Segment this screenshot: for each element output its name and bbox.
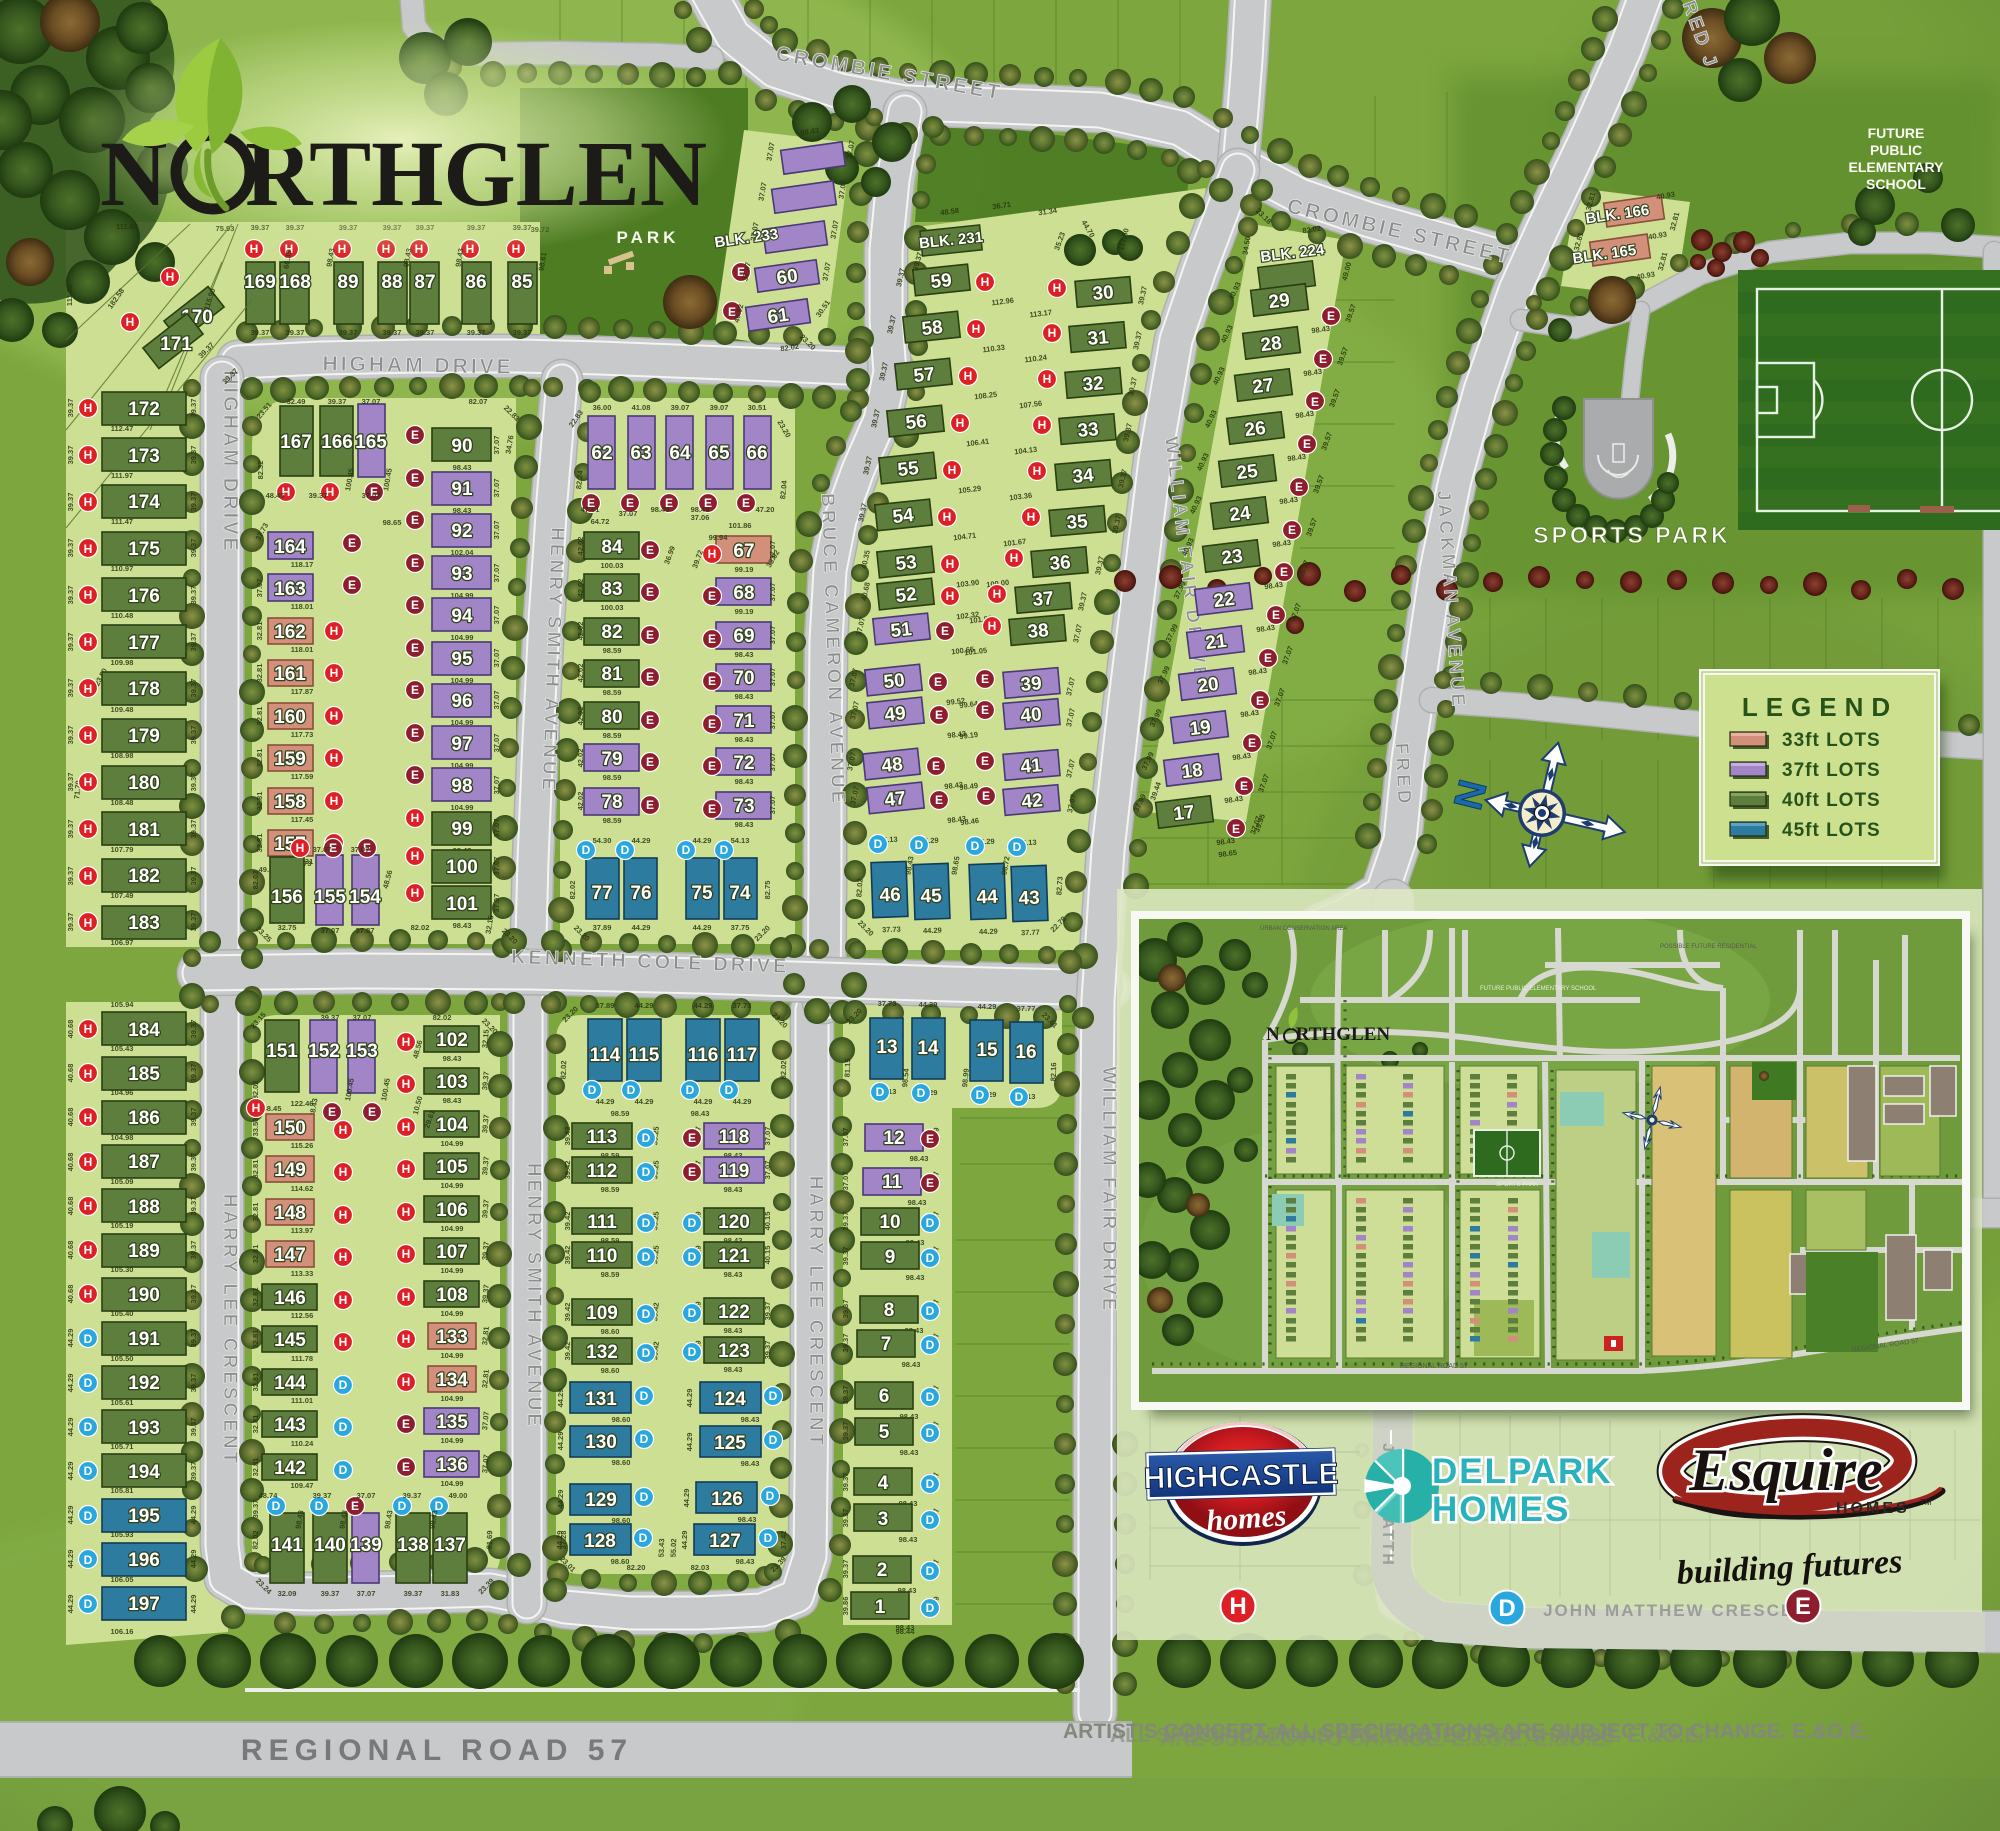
svg-text:SCHOOL: SCHOOL xyxy=(1866,176,1926,192)
svg-text:48.45: 48.45 xyxy=(266,491,285,500)
svg-text:98.43: 98.43 xyxy=(691,1109,710,1118)
svg-text:37.07: 37.07 xyxy=(768,796,777,815)
svg-text:82.02: 82.02 xyxy=(568,881,577,900)
svg-text:98.59: 98.59 xyxy=(601,1185,620,1194)
svg-text:65: 65 xyxy=(708,443,730,464)
svg-text:171: 171 xyxy=(160,334,192,355)
svg-text:H: H xyxy=(330,624,339,638)
svg-text:129: 129 xyxy=(585,1490,617,1511)
svg-text:42.02: 42.02 xyxy=(576,749,585,768)
svg-text:103: 103 xyxy=(436,1072,468,1093)
svg-text:39.37: 39.37 xyxy=(66,539,75,558)
svg-text:H: H xyxy=(993,587,1002,601)
svg-text:32.81: 32.81 xyxy=(255,664,264,683)
svg-text:44.29: 44.29 xyxy=(66,1462,75,1481)
svg-text:83: 83 xyxy=(601,579,622,600)
svg-text:39.37: 39.37 xyxy=(189,1285,198,1304)
svg-text:52: 52 xyxy=(895,584,918,607)
svg-text:H: H xyxy=(84,1022,93,1036)
svg-text:31: 31 xyxy=(1087,327,1110,350)
svg-text:REGIONAL ROAD 57: REGIONAL ROAD 57 xyxy=(1400,1363,1468,1370)
svg-text:H: H xyxy=(402,1035,411,1049)
svg-text:42.02: 42.02 xyxy=(576,664,585,683)
svg-text:37.07: 37.07 xyxy=(492,894,501,913)
svg-text:39.37: 39.37 xyxy=(189,1329,198,1348)
svg-text:E: E xyxy=(708,589,716,603)
svg-text:167: 167 xyxy=(280,432,312,453)
svg-text:110.48: 110.48 xyxy=(111,611,134,620)
svg-text:E: E xyxy=(1280,565,1288,579)
svg-text:37.07: 37.07 xyxy=(492,479,501,498)
svg-text:63: 63 xyxy=(630,443,651,464)
svg-text:104.99: 104.99 xyxy=(441,1139,464,1148)
svg-text:E: E xyxy=(1795,1593,1811,1620)
svg-text:87: 87 xyxy=(414,272,435,293)
svg-text:82.02: 82.02 xyxy=(251,871,260,890)
svg-text:D: D xyxy=(926,1601,935,1615)
svg-text:5: 5 xyxy=(879,1422,890,1443)
svg-text:28: 28 xyxy=(1259,333,1283,356)
svg-text:96: 96 xyxy=(451,691,472,712)
svg-text:139: 139 xyxy=(350,1535,382,1556)
svg-text:53: 53 xyxy=(895,552,918,575)
svg-text:118.01: 118.01 xyxy=(291,645,314,654)
svg-text:100.03: 100.03 xyxy=(601,561,624,570)
svg-text:E: E xyxy=(1288,523,1296,537)
svg-text:D: D xyxy=(84,1420,93,1434)
svg-text:100: 100 xyxy=(446,857,478,878)
svg-text:44.29: 44.29 xyxy=(694,1001,713,1010)
svg-text:H: H xyxy=(1229,1593,1246,1620)
svg-text:196: 196 xyxy=(128,1550,160,1571)
svg-text:36: 36 xyxy=(1049,552,1072,575)
svg-text:E: E xyxy=(646,543,654,557)
svg-text:39.37: 39.37 xyxy=(383,328,402,337)
svg-text:D: D xyxy=(84,1464,93,1478)
svg-text:111.47: 111.47 xyxy=(111,517,133,526)
svg-text:H: H xyxy=(84,1111,93,1125)
svg-text:37.07: 37.07 xyxy=(768,668,777,687)
svg-text:32.81: 32.81 xyxy=(255,622,264,641)
svg-text:89: 89 xyxy=(337,272,358,293)
svg-text:H: H xyxy=(84,1243,93,1257)
svg-text:109.48: 109.48 xyxy=(111,705,134,714)
svg-text:H: H xyxy=(1033,464,1042,478)
svg-text:105.43: 105.43 xyxy=(111,1044,134,1053)
svg-text:105.61: 105.61 xyxy=(111,1398,134,1407)
svg-text:98.43: 98.43 xyxy=(735,777,754,786)
svg-text:117.87: 117.87 xyxy=(291,687,314,696)
svg-text:78: 78 xyxy=(601,792,622,813)
svg-text:72: 72 xyxy=(733,753,754,774)
svg-text:D: D xyxy=(926,1426,935,1440)
svg-text:107: 107 xyxy=(436,1242,468,1263)
svg-text:39.42: 39.42 xyxy=(563,1212,572,1231)
svg-text:39.37: 39.37 xyxy=(189,399,198,418)
svg-text:39.42: 39.42 xyxy=(563,1161,572,1180)
svg-text:39.37: 39.37 xyxy=(513,328,532,337)
svg-text:118.17: 118.17 xyxy=(291,560,314,569)
svg-text:141: 141 xyxy=(271,1535,303,1556)
svg-text:20: 20 xyxy=(1196,674,1220,697)
svg-text:39.37: 39.37 xyxy=(189,1374,198,1393)
svg-text:E: E xyxy=(934,675,942,689)
svg-text:120: 120 xyxy=(718,1212,750,1233)
svg-text:FRED: FRED xyxy=(1390,742,1414,807)
svg-text:42.02: 42.02 xyxy=(576,537,585,556)
svg-text:E: E xyxy=(328,1105,336,1119)
svg-text:67: 67 xyxy=(733,541,754,562)
svg-text:15: 15 xyxy=(976,1040,998,1061)
svg-text:41.08: 41.08 xyxy=(632,403,651,412)
svg-text:42.02: 42.02 xyxy=(576,792,585,811)
svg-text:H: H xyxy=(411,886,420,900)
svg-text:E: E xyxy=(982,789,990,803)
svg-text:39.37: 39.37 xyxy=(66,399,75,418)
svg-text:D: D xyxy=(926,1513,935,1527)
svg-text:50: 50 xyxy=(883,670,906,693)
svg-text:D: D xyxy=(1015,1090,1024,1104)
svg-text:101: 101 xyxy=(446,894,478,915)
svg-text:181: 181 xyxy=(128,820,160,841)
svg-text:44.29: 44.29 xyxy=(733,1097,752,1106)
svg-text:H: H xyxy=(84,635,93,649)
svg-text:110: 110 xyxy=(587,1246,618,1267)
svg-text:77: 77 xyxy=(591,883,612,904)
svg-text:H: H xyxy=(708,547,717,561)
svg-text:115.26: 115.26 xyxy=(291,1141,314,1150)
svg-text:104.99: 104.99 xyxy=(451,633,474,642)
svg-text:156: 156 xyxy=(271,887,303,908)
svg-text:39.37: 39.37 xyxy=(328,397,347,406)
svg-text:E: E xyxy=(646,628,654,642)
svg-text:173: 173 xyxy=(128,446,160,467)
svg-text:H: H xyxy=(84,729,93,743)
svg-text:39.37: 39.37 xyxy=(841,1300,850,1319)
svg-text:98.43: 98.43 xyxy=(724,1185,743,1194)
svg-text:E: E xyxy=(926,1132,934,1146)
svg-text:39.37: 39.37 xyxy=(189,820,198,839)
svg-text:17: 17 xyxy=(1172,802,1196,825)
svg-text:165: 165 xyxy=(355,432,387,453)
svg-text:H: H xyxy=(1010,551,1019,565)
svg-text:82.75: 82.75 xyxy=(763,881,772,900)
svg-text:39.37: 39.37 xyxy=(189,913,198,932)
svg-text:38: 38 xyxy=(1027,620,1050,643)
svg-text:117.45: 117.45 xyxy=(291,815,314,824)
svg-text:D: D xyxy=(971,839,980,853)
svg-text:37.07: 37.07 xyxy=(480,1411,491,1430)
svg-text:122: 122 xyxy=(718,1302,750,1323)
svg-text:194: 194 xyxy=(128,1462,160,1483)
svg-text:45: 45 xyxy=(920,886,942,908)
svg-text:98.43: 98.43 xyxy=(741,1459,760,1468)
svg-text:24: 24 xyxy=(1228,503,1252,526)
svg-text:H: H xyxy=(339,1335,348,1349)
svg-text:32.81: 32.81 xyxy=(480,1326,491,1345)
svg-text:H: H xyxy=(84,916,93,930)
svg-text:39.42: 39.42 xyxy=(563,1127,572,1146)
svg-text:H: H xyxy=(946,589,955,603)
svg-text:84: 84 xyxy=(601,537,623,558)
svg-text:D: D xyxy=(917,1086,926,1100)
svg-text:98.60: 98.60 xyxy=(612,1458,631,1467)
svg-text:37.77: 37.77 xyxy=(1017,1004,1036,1013)
svg-text:D: D xyxy=(926,1251,935,1265)
svg-text:98.59: 98.59 xyxy=(603,731,622,740)
svg-text:104.96: 104.96 xyxy=(111,1088,134,1097)
svg-text:44.29: 44.29 xyxy=(979,927,998,937)
svg-text:148: 148 xyxy=(274,1203,306,1224)
svg-text:80: 80 xyxy=(601,707,622,728)
svg-text:42.02: 42.02 xyxy=(576,579,585,598)
svg-text:32.81: 32.81 xyxy=(251,1330,260,1349)
svg-text:37.28: 37.28 xyxy=(559,1531,568,1550)
svg-text:44.29: 44.29 xyxy=(596,1097,615,1106)
svg-text:117.73: 117.73 xyxy=(291,730,314,739)
svg-text:40.68: 40.68 xyxy=(66,1285,75,1304)
svg-text:32.09: 32.09 xyxy=(278,1589,297,1598)
svg-text:D: D xyxy=(640,1389,649,1403)
svg-text:D: D xyxy=(688,1250,697,1264)
svg-text:HIGHAM DRIVE: HIGHAM DRIVE xyxy=(322,352,514,378)
svg-text:E: E xyxy=(708,632,716,646)
svg-text:WILLIAM FAIR DRIVE: WILLIAM FAIR DRIVE xyxy=(1098,1066,1119,1313)
svg-text:44.29: 44.29 xyxy=(189,1550,198,1569)
svg-text:128: 128 xyxy=(584,1531,616,1552)
svg-text:H: H xyxy=(166,270,175,284)
svg-text:182: 182 xyxy=(128,866,160,887)
svg-text:37.07: 37.07 xyxy=(768,626,777,645)
svg-text:H: H xyxy=(84,775,93,789)
svg-text:32.81: 32.81 xyxy=(251,1373,260,1392)
svg-text:40.15: 40.15 xyxy=(763,1246,772,1265)
svg-text:37.07: 37.07 xyxy=(313,845,332,854)
svg-text:31.83: 31.83 xyxy=(441,1589,460,1598)
svg-text:98.99: 98.99 xyxy=(960,1068,971,1087)
svg-text:37.07: 37.07 xyxy=(255,579,264,598)
svg-text:39: 39 xyxy=(1020,673,1043,696)
svg-text:99: 99 xyxy=(451,819,472,840)
svg-text:D: D xyxy=(766,1489,775,1503)
svg-text:12: 12 xyxy=(883,1128,904,1149)
svg-text:PUBLIC: PUBLIC xyxy=(1870,142,1922,158)
svg-text:37.07: 37.07 xyxy=(492,691,501,710)
svg-text:140: 140 xyxy=(314,1535,346,1556)
svg-text:40.68: 40.68 xyxy=(66,1064,75,1083)
svg-text:127: 127 xyxy=(709,1531,741,1552)
svg-text:32.81: 32.81 xyxy=(251,1458,260,1477)
svg-text:D: D xyxy=(926,1390,935,1404)
svg-text:E: E xyxy=(646,585,654,599)
svg-text:37.07: 37.07 xyxy=(480,1454,491,1473)
svg-text:FUTURE: FUTURE xyxy=(1868,125,1925,141)
svg-text:H: H xyxy=(330,666,339,680)
svg-text:37.07: 37.07 xyxy=(492,606,501,625)
svg-text:176: 176 xyxy=(128,586,160,607)
svg-text:39.37: 39.37 xyxy=(189,1064,198,1083)
svg-text:9: 9 xyxy=(885,1247,896,1268)
svg-text:D: D xyxy=(682,843,691,857)
svg-text:39.37: 39.37 xyxy=(66,446,75,465)
svg-text:37.73: 37.73 xyxy=(882,925,901,935)
svg-text:D: D xyxy=(84,1553,93,1567)
svg-text:44.29: 44.29 xyxy=(685,1389,694,1408)
svg-text:108: 108 xyxy=(436,1285,468,1306)
svg-text:ELEMENTARY: ELEMENTARY xyxy=(1849,159,1945,175)
svg-text:39.86: 39.86 xyxy=(841,1597,850,1616)
svg-text:98.60: 98.60 xyxy=(601,1366,620,1375)
svg-text:E: E xyxy=(411,471,419,485)
svg-text:E: E xyxy=(411,428,419,442)
svg-text:79: 79 xyxy=(601,749,622,770)
svg-text:98.43: 98.43 xyxy=(908,1198,927,1207)
svg-text:174: 174 xyxy=(128,492,160,513)
svg-text:154: 154 xyxy=(349,887,381,908)
svg-text:39.37: 39.37 xyxy=(189,1020,198,1039)
svg-text:H: H xyxy=(330,751,339,765)
svg-text:111.66: 111.66 xyxy=(65,284,74,306)
svg-text:189: 189 xyxy=(128,1241,160,1262)
svg-text:H: H xyxy=(126,315,135,329)
svg-text:SPORTS PARK: SPORTS PARK xyxy=(1496,1182,1538,1188)
svg-text:Esquire: Esquire xyxy=(1688,1437,1882,1503)
svg-text:82.02: 82.02 xyxy=(251,1530,261,1549)
svg-text:26: 26 xyxy=(1243,418,1267,441)
svg-text:37.77: 37.77 xyxy=(1021,928,1040,938)
svg-text:H: H xyxy=(339,1208,348,1222)
svg-text:H: H xyxy=(402,1375,411,1389)
svg-text:37.07: 37.07 xyxy=(763,1127,772,1146)
svg-text:98.43: 98.43 xyxy=(900,1448,919,1457)
svg-text:D: D xyxy=(640,1490,649,1504)
svg-text:37.07: 37.07 xyxy=(362,491,381,500)
svg-text:44.29: 44.29 xyxy=(693,923,712,932)
svg-text:39.37: 39.37 xyxy=(763,1302,772,1321)
svg-text:HARRY LEE CRESCENT: HARRY LEE CRESCENT xyxy=(805,1176,826,1449)
svg-text:44.29: 44.29 xyxy=(66,1506,75,1525)
svg-text:76: 76 xyxy=(630,883,651,904)
svg-text:71: 71 xyxy=(733,711,755,732)
svg-text:37.07: 37.07 xyxy=(768,711,777,730)
svg-text:32.81: 32.81 xyxy=(480,1369,491,1388)
svg-text:H: H xyxy=(1038,418,1047,432)
svg-text:37.89: 37.89 xyxy=(596,1001,615,1010)
svg-text:109.98: 109.98 xyxy=(111,658,134,667)
svg-text:39.37: 39.37 xyxy=(480,1114,491,1133)
svg-text:110.24: 110.24 xyxy=(291,1439,314,1448)
svg-text:REGIONAL ROAD 57: REGIONAL ROAD 57 xyxy=(241,1734,633,1767)
svg-text:160: 160 xyxy=(274,707,306,728)
svg-text:H: H xyxy=(972,322,981,336)
svg-text:E: E xyxy=(402,1417,410,1431)
svg-text:8: 8 xyxy=(884,1300,895,1321)
svg-text:39.37: 39.37 xyxy=(189,633,198,652)
svg-text:URBAN CONSERVATION AREA: URBAN CONSERVATION AREA xyxy=(1260,926,1347,932)
svg-text:114: 114 xyxy=(590,1045,621,1066)
svg-text:88: 88 xyxy=(381,272,402,293)
svg-text:44.29: 44.29 xyxy=(189,1595,198,1614)
svg-text:133: 133 xyxy=(436,1327,468,1348)
svg-text:10: 10 xyxy=(879,1212,900,1233)
svg-text:39.37: 39.37 xyxy=(841,1509,850,1528)
svg-text:E: E xyxy=(941,624,949,638)
svg-text:39.37: 39.37 xyxy=(66,867,75,886)
svg-text:98.65: 98.65 xyxy=(383,518,402,527)
svg-text:E: E xyxy=(348,536,356,550)
svg-text:D: D xyxy=(639,1531,648,1545)
svg-text:11: 11 xyxy=(882,1172,903,1193)
svg-text:98.43: 98.43 xyxy=(724,1326,743,1335)
svg-text:105.94: 105.94 xyxy=(111,1000,135,1009)
svg-text:64.72: 64.72 xyxy=(591,517,610,526)
svg-text:39.37: 39.37 xyxy=(404,1589,423,1598)
svg-text:37.75: 37.75 xyxy=(731,923,750,932)
svg-text:107.79: 107.79 xyxy=(111,845,134,854)
svg-text:39.37: 39.37 xyxy=(841,1386,850,1405)
svg-text:32.81: 32.81 xyxy=(255,834,264,853)
svg-text:H: H xyxy=(296,841,305,855)
svg-text:104.99: 104.99 xyxy=(441,1351,464,1360)
svg-text:E: E xyxy=(646,670,654,684)
svg-text:H: H xyxy=(988,619,997,633)
svg-text:53.43: 53.43 xyxy=(657,1538,667,1557)
svg-text:98: 98 xyxy=(451,776,472,797)
svg-text:HOMES: HOMES xyxy=(1432,1490,1570,1529)
svg-text:48.74: 48.74 xyxy=(259,1491,279,1500)
svg-text:39.37: 39.37 xyxy=(189,1241,198,1260)
svg-text:44.29: 44.29 xyxy=(682,1489,691,1508)
svg-text:H: H xyxy=(402,1162,411,1176)
svg-text:37.07: 37.07 xyxy=(619,509,638,518)
svg-text:D: D xyxy=(764,1531,773,1545)
svg-text:39.37: 39.37 xyxy=(189,1462,198,1481)
svg-text:HOMES: HOMES xyxy=(1836,1500,1910,1517)
svg-text:48: 48 xyxy=(881,754,904,777)
svg-text:E: E xyxy=(935,708,943,722)
svg-text:D: D xyxy=(582,843,591,857)
svg-text:H: H xyxy=(411,811,420,825)
svg-text:98.43: 98.43 xyxy=(443,1054,462,1063)
svg-text:99.19: 99.19 xyxy=(735,607,754,616)
svg-text:162: 162 xyxy=(274,622,306,643)
svg-text:39.37: 39.37 xyxy=(189,446,198,465)
svg-text:124: 124 xyxy=(714,1389,746,1410)
svg-text:81.15: 81.15 xyxy=(843,1058,853,1077)
svg-text:E: E xyxy=(708,802,716,816)
svg-text:118.01: 118.01 xyxy=(291,602,314,611)
svg-text:40.68: 40.68 xyxy=(66,1197,75,1216)
svg-text:44.29: 44.29 xyxy=(919,1000,938,1009)
svg-text:125: 125 xyxy=(714,1433,746,1454)
svg-text:D: D xyxy=(926,1216,935,1230)
svg-text:94: 94 xyxy=(451,606,473,627)
svg-text:32.81: 32.81 xyxy=(251,1203,260,1222)
svg-text:44.29: 44.29 xyxy=(189,1506,198,1525)
svg-text:175: 175 xyxy=(128,539,160,560)
svg-text:37.07: 37.07 xyxy=(321,926,340,935)
svg-text:45ft LOTS: 45ft LOTS xyxy=(1782,820,1881,841)
svg-text:104.99: 104.99 xyxy=(441,1224,464,1233)
svg-text:D: D xyxy=(915,838,924,852)
svg-text:44.29: 44.29 xyxy=(680,1531,689,1550)
svg-text:44.29: 44.29 xyxy=(635,1001,654,1010)
svg-text:H: H xyxy=(946,557,955,571)
svg-text:37.07: 37.07 xyxy=(492,734,501,753)
svg-text:43: 43 xyxy=(1018,888,1040,910)
svg-text:104.99: 104.99 xyxy=(441,1181,464,1190)
svg-text:E: E xyxy=(411,641,419,655)
